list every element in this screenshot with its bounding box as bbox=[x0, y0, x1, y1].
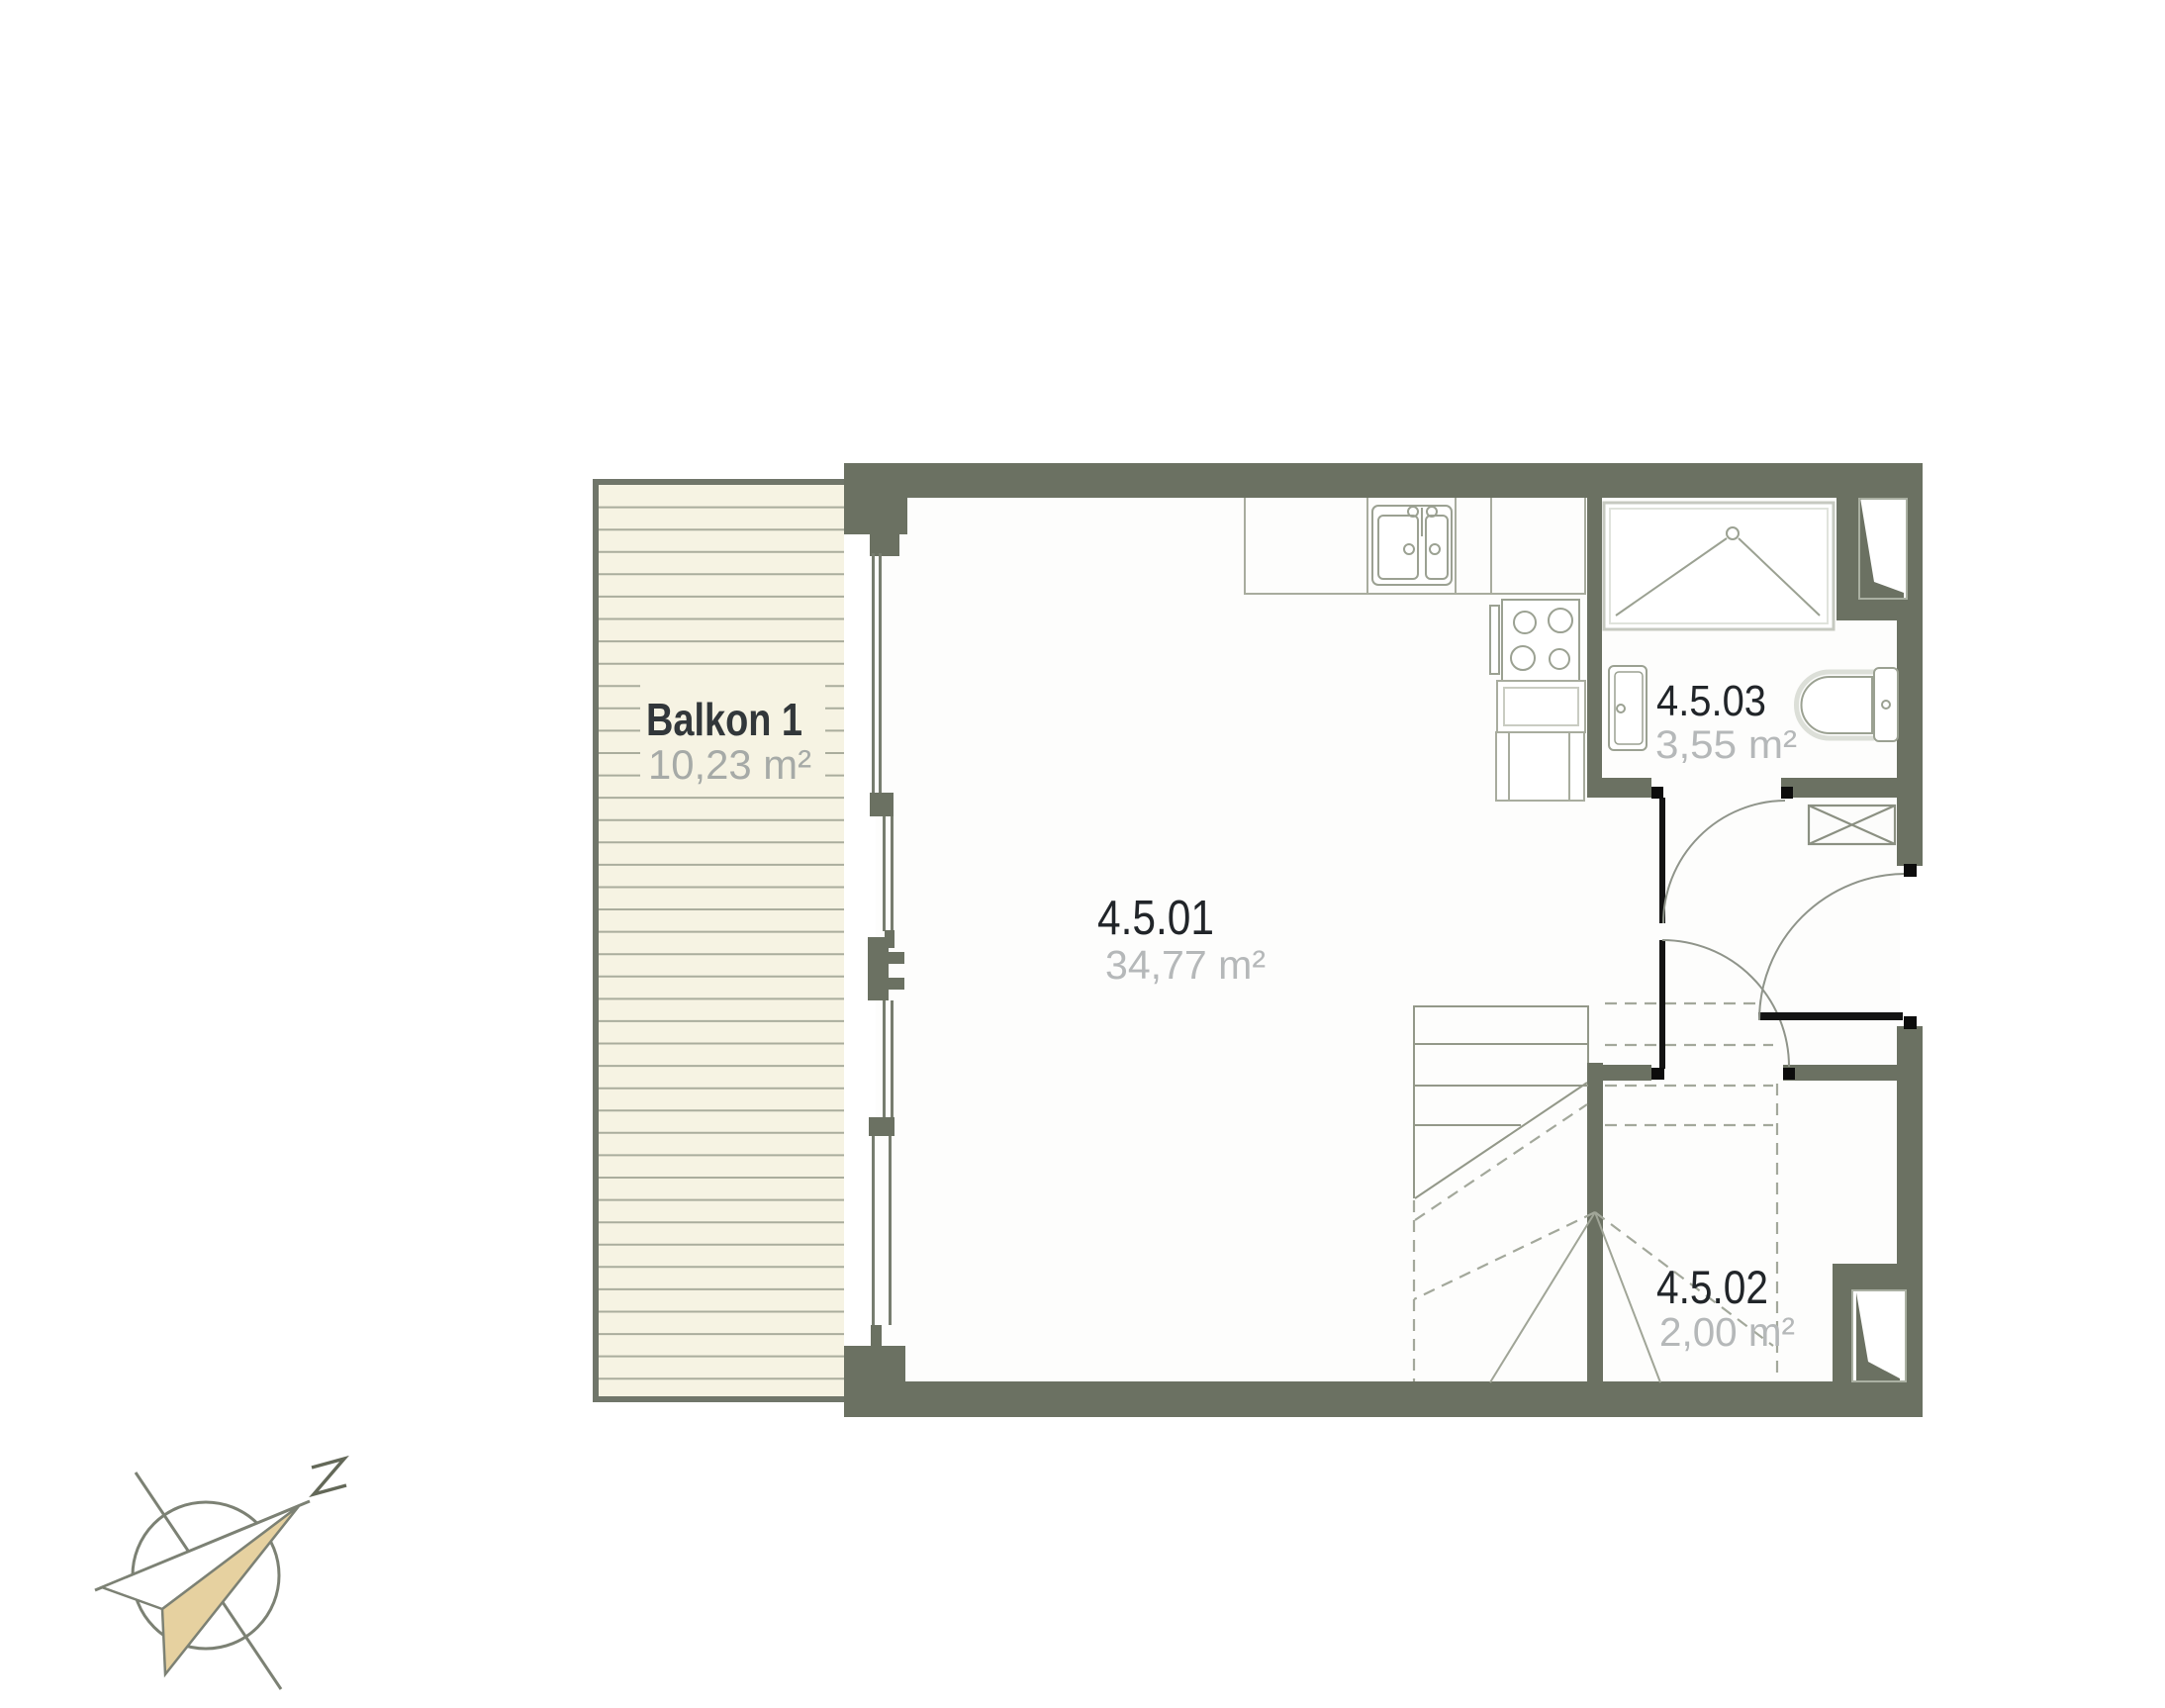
svg-text:34,77 m²: 34,77 m² bbox=[1105, 942, 1266, 988]
svg-text:Balkon 1: Balkon 1 bbox=[646, 694, 802, 745]
svg-text:3,55 m²: 3,55 m² bbox=[1655, 723, 1797, 767]
svg-text:4.5.03: 4.5.03 bbox=[1656, 677, 1766, 725]
svg-text:4.5.01: 4.5.01 bbox=[1097, 892, 1214, 945]
svg-text:2,00 m²: 2,00 m² bbox=[1659, 1309, 1795, 1355]
svg-text:10,23 m²: 10,23 m² bbox=[648, 741, 811, 788]
svg-text:4.5.02: 4.5.02 bbox=[1656, 1261, 1768, 1313]
